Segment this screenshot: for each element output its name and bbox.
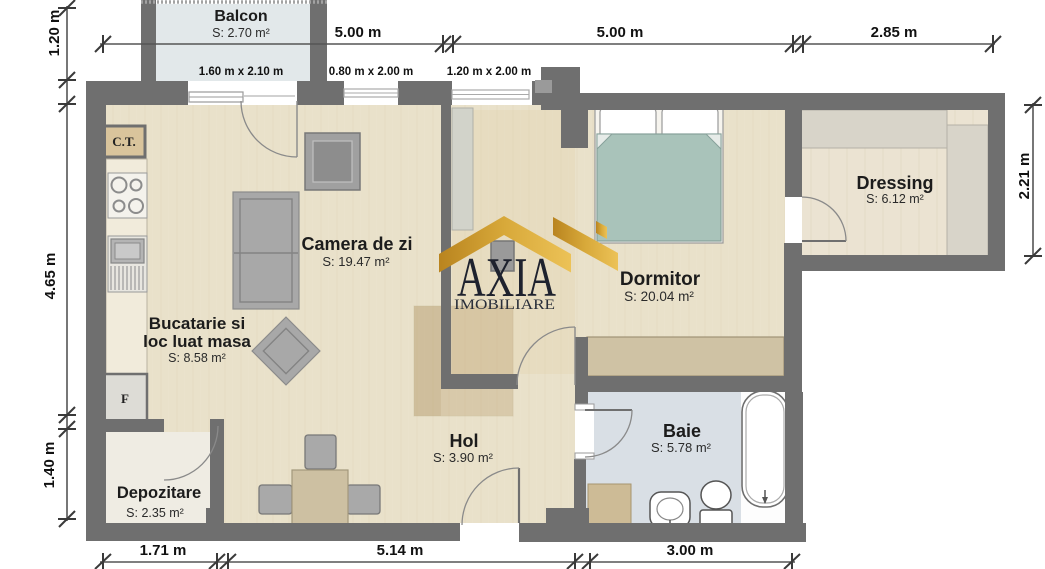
svg-text:5.14 m: 5.14 m	[377, 542, 424, 559]
svg-text:Hol: Hol	[450, 431, 479, 451]
svg-text:5.00 m: 5.00 m	[597, 24, 644, 41]
svg-text:5.00 m: 5.00 m	[335, 24, 382, 41]
svg-text:Depozitare: Depozitare	[117, 484, 201, 502]
svg-text:Camera de zi: Camera de zi	[301, 234, 412, 254]
svg-text:loc luat masa: loc luat masa	[143, 332, 251, 351]
svg-text:F: F	[121, 391, 129, 406]
svg-text:S: 2.35 m²: S: 2.35 m²	[126, 506, 184, 520]
svg-text:C.T.: C.T.	[112, 134, 136, 149]
svg-text:2.85 m: 2.85 m	[871, 24, 918, 41]
svg-text:2.21 m: 2.21 m	[1016, 153, 1033, 200]
svg-text:S: 5.78 m²: S: 5.78 m²	[651, 440, 712, 455]
svg-text:Balcon: Balcon	[214, 8, 267, 25]
svg-text:Bucatarie si: Bucatarie si	[149, 314, 245, 333]
svg-text:Dressing: Dressing	[856, 173, 933, 193]
svg-text:1.20 m x 2.00 m: 1.20 m x 2.00 m	[447, 66, 531, 78]
svg-text:S: 8.58 m²: S: 8.58 m²	[168, 351, 226, 365]
svg-text:Baie: Baie	[663, 421, 701, 441]
svg-text:S: 20.04 m²: S: 20.04 m²	[624, 289, 694, 304]
svg-text:4.65 m: 4.65 m	[42, 253, 59, 300]
svg-text:Dormitor: Dormitor	[620, 269, 701, 290]
svg-text:S: 3.90 m²: S: 3.90 m²	[433, 450, 494, 465]
svg-text:S: 2.70 m²: S: 2.70 m²	[212, 26, 270, 40]
svg-text:S: 19.47 m²: S: 19.47 m²	[322, 254, 390, 269]
svg-text:1.71 m: 1.71 m	[140, 542, 187, 559]
svg-text:1.40 m: 1.40 m	[41, 442, 58, 489]
svg-text:IMOBILIARE: IMOBILIARE	[454, 297, 555, 313]
svg-text:S: 6.12 m²: S: 6.12 m²	[866, 192, 924, 206]
svg-text:1.60 m x 2.10 m: 1.60 m x 2.10 m	[199, 66, 283, 78]
svg-text:1.20 m: 1.20 m	[46, 10, 63, 57]
svg-text:3.00 m: 3.00 m	[667, 542, 714, 559]
svg-text:0.80 m x 2.00 m: 0.80 m x 2.00 m	[329, 66, 413, 78]
